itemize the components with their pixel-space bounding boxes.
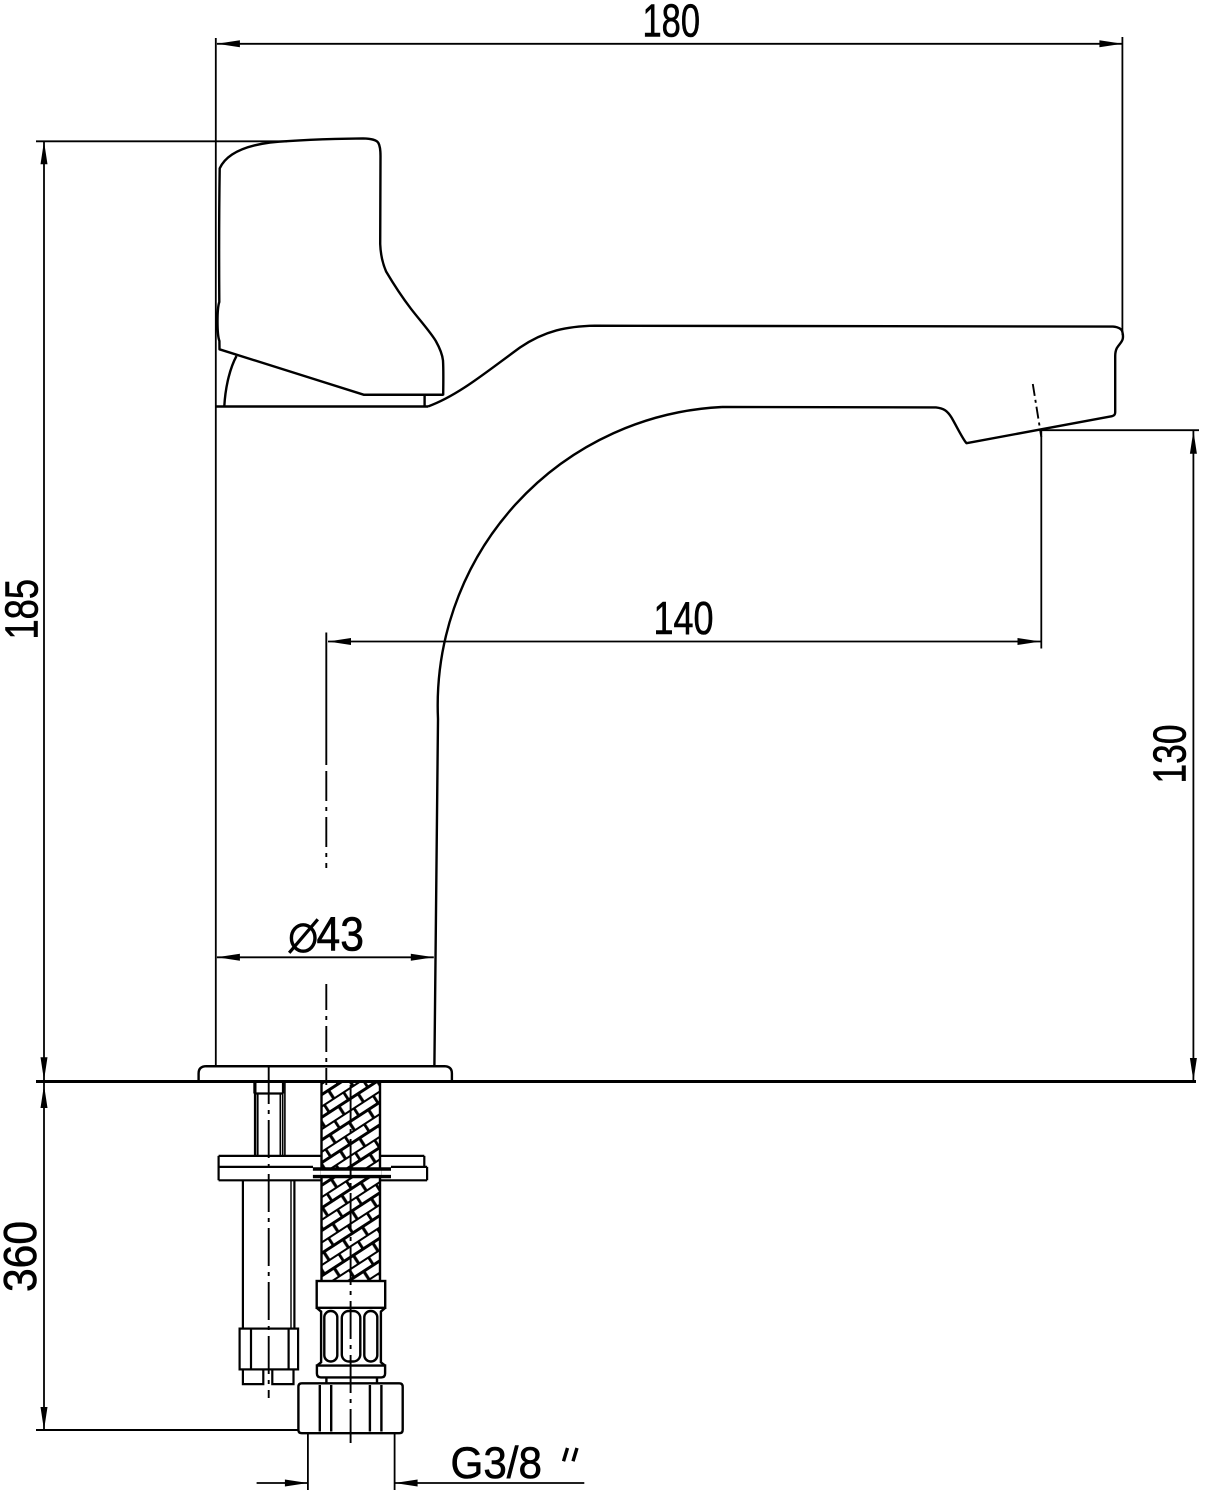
svg-text:130: 130 [1144, 725, 1196, 784]
svg-text:140: 140 [654, 592, 714, 644]
svg-text:G3/8: G3/8 [451, 1439, 543, 1488]
svg-text:185: 185 [0, 579, 48, 640]
svg-text:180: 180 [643, 0, 701, 47]
svg-text:43: 43 [317, 908, 365, 961]
svg-text:360: 360 [0, 1221, 46, 1292]
